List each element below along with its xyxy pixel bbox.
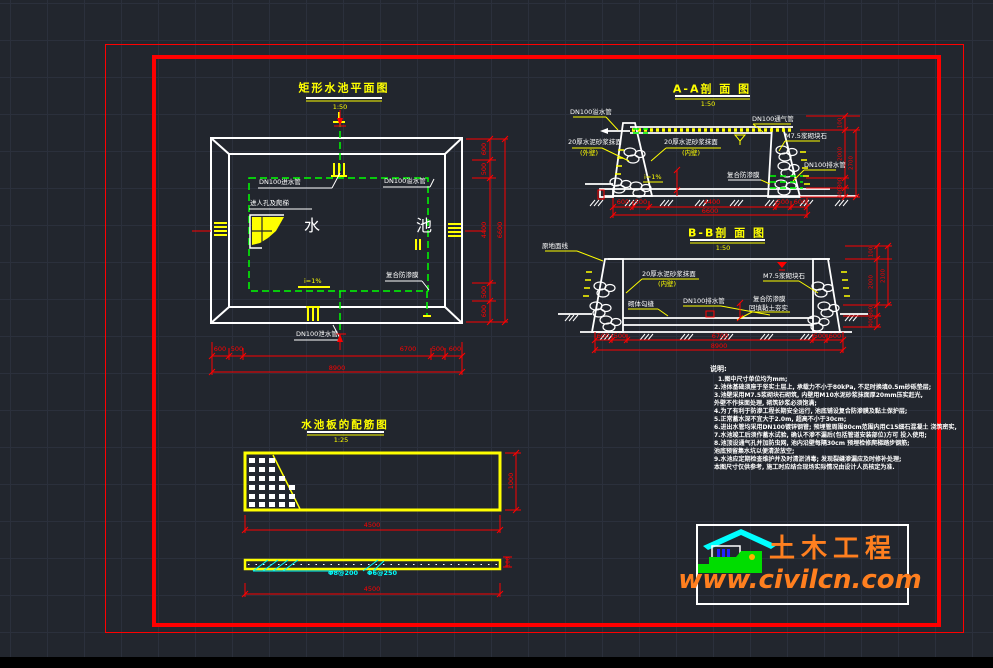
- dim-text: 500: [481, 286, 488, 298]
- rebar-slab-plan: [245, 453, 500, 510]
- plan-pool-word-1: 水: [304, 218, 322, 234]
- aa-label-membrane: 复合防渗膜: [727, 172, 760, 179]
- aa-label-plaster-out: 20厚水泥砂浆抹面: [568, 139, 622, 146]
- dim-text: 2100: [881, 269, 887, 283]
- logo-site-url: www.civilcn.com: [678, 567, 922, 593]
- aa-label-drain: DN100排水管: [804, 162, 846, 169]
- plan-label-manhole: 进人孔及爬梯: [250, 200, 289, 207]
- aa-label-stone: M7.5浆砌块石: [785, 133, 827, 140]
- rebar-title: 水池板的配筋图: [301, 420, 389, 431]
- aa-title-underline: [675, 96, 750, 99]
- bb-label-plaster: 20厚水泥砂浆抹面: [642, 271, 696, 278]
- rebar-bar-main-label: Φ8@200: [328, 570, 358, 577]
- notes-line: 6.进出水管均采用DN100镀锌钢管; 预埋管周围80cm范围内用C15细石混凝…: [714, 425, 957, 431]
- dim-text: 2000: [838, 147, 844, 161]
- plan-title-underline: [306, 98, 382, 101]
- bb-walls: [558, 259, 868, 332]
- dim-text: 400: [869, 317, 875, 328]
- rebar-scale: 1:25: [334, 437, 349, 444]
- dim-text: 1000: [508, 473, 515, 490]
- dim-text: 600: [829, 333, 841, 340]
- dim-text: 8900: [329, 365, 346, 372]
- plan-label-slope: i=1%: [304, 278, 322, 285]
- bb-label-membrane-sub: 回填黏土夯实: [749, 305, 788, 312]
- plan-label-membrane: 复合防渗膜: [386, 272, 419, 279]
- dim-text: 600: [794, 199, 806, 206]
- aa-label-plaster-in-sub: (内壁): [682, 150, 700, 157]
- plan-label-drain: DN100泄水管: [296, 331, 338, 338]
- bb-title-underline: [690, 240, 765, 243]
- dim-text: 500: [777, 199, 789, 206]
- dim-text: 600: [481, 143, 488, 155]
- bb-title: B-B剖 面 图: [688, 228, 766, 239]
- dim-text: 6600: [497, 222, 504, 239]
- dim-text: 600: [617, 199, 629, 206]
- bb-scale: 1:50: [716, 245, 731, 252]
- dim-text: 8900: [711, 343, 728, 350]
- aa-label-slope: i=1%: [644, 174, 662, 181]
- bb-label-membrane: 复合防渗膜: [753, 296, 786, 303]
- notes-line: 外壁不作抹面处理, 砌筑砂浆必须饱满;: [714, 401, 817, 407]
- plan-label-overflow: DN100溢水管: [384, 178, 426, 185]
- dim-text: 500: [614, 333, 626, 340]
- dim-text: 6700: [400, 346, 417, 353]
- dim-text: 600: [214, 346, 226, 353]
- rebar-bar-dist-label: Φ6@250: [367, 570, 397, 577]
- bb-label-drain: DN100排水管: [683, 298, 725, 305]
- dim-text: 600: [481, 305, 488, 317]
- dim-text: 600: [449, 346, 461, 353]
- dim-text: 4400: [704, 199, 721, 206]
- dim-text: 6600: [702, 208, 719, 215]
- notes-line: 4.为了有利于防渗工程长期安全运行, 池底铺设复合防渗膜及黏土保护层;: [714, 409, 907, 415]
- bb-label-plaster-sub: (内壁): [658, 281, 676, 288]
- dim-text: 4400: [481, 222, 488, 239]
- dim-text: 4500: [364, 586, 381, 593]
- dim-text: 500: [481, 163, 488, 175]
- notes-line: 2.池体基础须座于坚实土层上, 承载力不小于80kPa, 不足时换填0.5m砂砾…: [714, 385, 931, 391]
- aa-label-plaster-out-sub: (外壁): [580, 150, 598, 157]
- dim-text: 500: [432, 346, 444, 353]
- dim-text: 4500: [364, 522, 381, 529]
- plan-label-inlet: DN100进水管: [259, 179, 301, 186]
- dim-text: 2700: [849, 156, 855, 170]
- notes-line: 9.水池应定期检查维护并及时清淤消毒; 发现裂缝渗漏应及时修补处理;: [714, 457, 901, 463]
- notes-line: 池底预留集水坑以便清淤放空;: [714, 449, 794, 455]
- manhole-icon: [250, 215, 284, 248]
- plan-dimensions: [192, 110, 508, 375]
- notes-line: 5.正常蓄水深不宜大于2.0m, 超高不小于30cm;: [714, 417, 846, 423]
- notes-line: 7.水池竣工后须作蓄水试验, 确认不渗不漏后(包括管道安装部位)方可 投入使用;: [714, 433, 927, 439]
- rebar-title-underline: [307, 432, 384, 435]
- cad-viewport: 矩形水池平面图 1:50 DN100进水管 DN100溢水管 进人孔及爬梯 复合…: [0, 0, 993, 668]
- aa-scale: 1:50: [701, 101, 716, 108]
- notes-line: 1.图中尺寸单位均为mm;: [718, 377, 787, 383]
- dim-text: 6700: [712, 333, 729, 340]
- aa-title: A-A剖 面 图: [673, 84, 751, 95]
- bb-label-ground: 原地面线: [542, 243, 568, 250]
- dim-text: 100: [838, 118, 844, 129]
- plan-pool-word-2: 池: [416, 218, 434, 234]
- bb-label-stone: M7.5浆砌块石: [763, 273, 805, 280]
- aa-label-overflow: DN100溢水管: [570, 109, 612, 116]
- dim-text: 100: [869, 247, 875, 258]
- dim-text: 500: [231, 346, 243, 353]
- dim-text: 400: [838, 188, 844, 199]
- aa-label-vent: DN100通气管: [752, 116, 794, 123]
- dim-text: 500: [635, 199, 647, 206]
- notes-line: 8.池顶设通气孔并加防虫网, 池内沿壁每隔30cm 预埋检修爬梯踏步钢筋;: [714, 441, 909, 447]
- notes-line: 本图尺寸仅供参考, 施工时应结合现场实际情况由设计人员核定为准.: [714, 465, 895, 471]
- dim-text: 2000: [869, 275, 875, 289]
- plan-title: 矩形水池平面图: [299, 83, 390, 94]
- bb-label-joint: 砌体勾缝: [628, 301, 654, 308]
- dim-text: 600: [597, 333, 609, 340]
- aa-label-plaster-in: 20厚水泥砂浆抹面: [664, 139, 718, 146]
- dim-text: 500: [814, 333, 826, 340]
- plan-scale: 1:50: [333, 104, 348, 111]
- logo-brand-text: 土木工程: [769, 536, 897, 562]
- notes-line: 3.池壁采用M7.5浆砌块石砌筑, 内壁用M10水泥砂浆抹面厚20mm压实赶光,: [714, 393, 923, 399]
- notes-title: 说明:: [710, 366, 727, 373]
- dim-text: 100: [506, 557, 512, 568]
- rebar-hatch-squares: [249, 458, 295, 507]
- dim-text: 300: [869, 306, 875, 317]
